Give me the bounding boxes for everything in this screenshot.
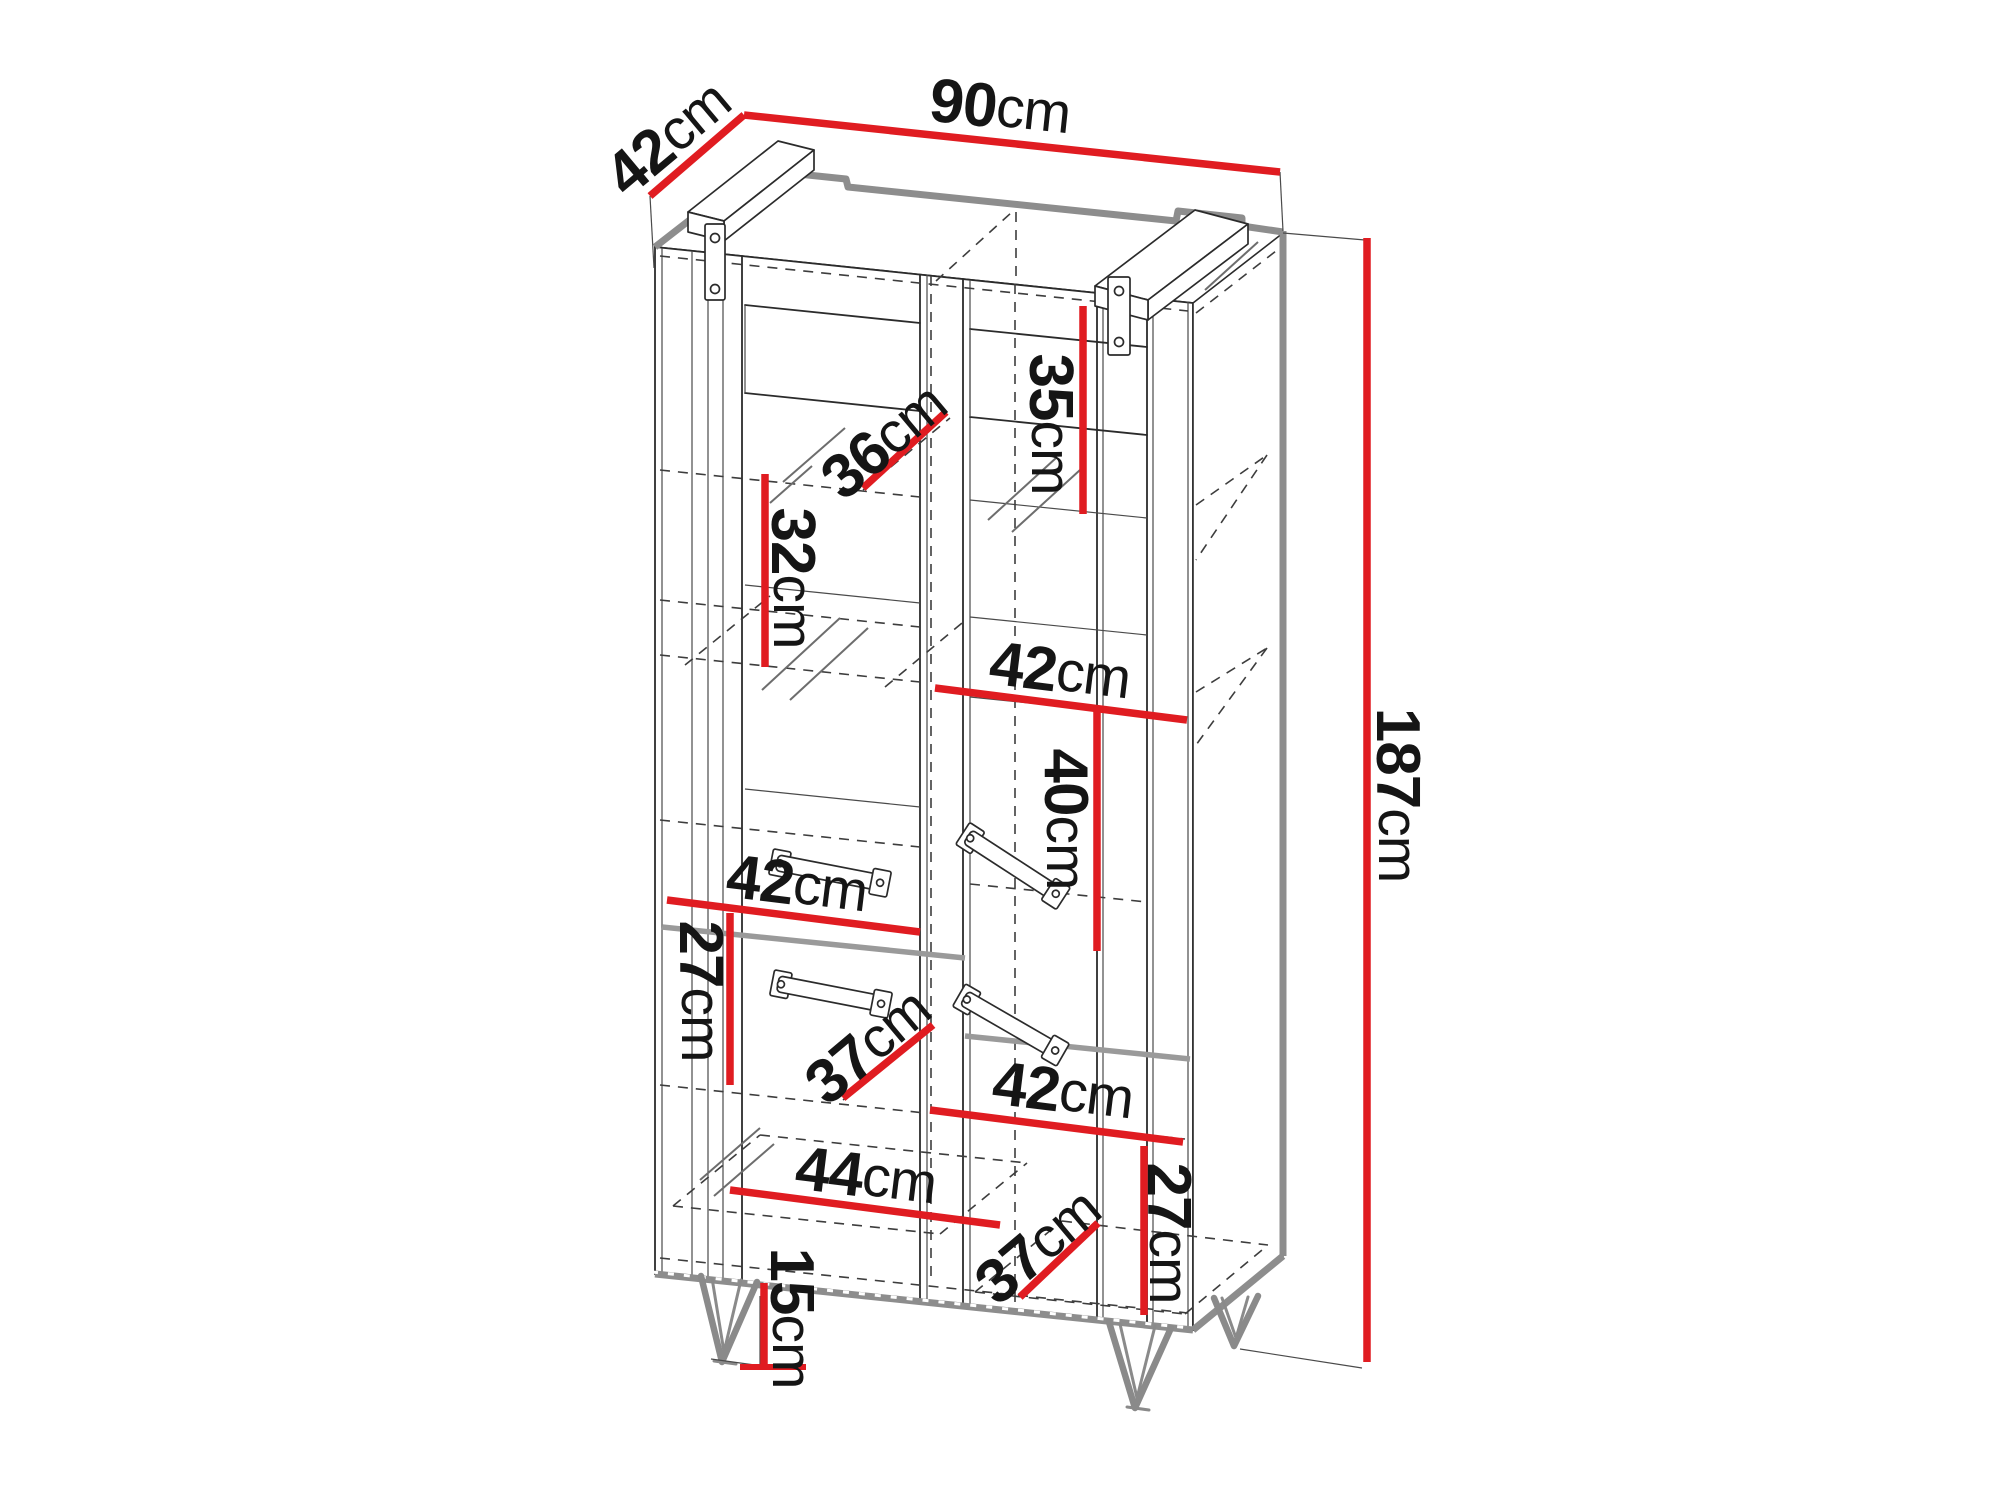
dim-label-top-width: 90cm	[926, 65, 1073, 148]
floor-line	[1240, 1349, 1362, 1368]
dim-label-lower-left-shelf-height: 27cm	[667, 921, 736, 1062]
cabinet-right-side	[1193, 233, 1283, 1330]
screw-hole-icon	[711, 285, 720, 294]
dim-label-overall-height: 187cm	[1364, 708, 1433, 882]
screw-hole-icon	[1115, 287, 1124, 296]
svg-text:40cm: 40cm	[1032, 749, 1101, 890]
svg-text:27cm: 27cm	[1135, 1163, 1204, 1304]
svg-text:35cm: 35cm	[1017, 354, 1086, 495]
dimension-drawing-page: 42cm 90cm 187cm 36cm 35cm 32cm 42cm 40cm…	[0, 0, 2000, 1499]
hairpin-leg-front-left	[701, 1276, 757, 1364]
svg-text:32cm: 32cm	[759, 508, 828, 649]
dim-label-leg-height: 15cm	[758, 1248, 827, 1389]
screw-hole-icon	[711, 234, 720, 243]
svg-text:27cm: 27cm	[667, 921, 736, 1062]
svg-text:187cm: 187cm	[1364, 708, 1433, 882]
dim-label-middle-right-height: 40cm	[1032, 749, 1101, 890]
screw-hole-icon	[1115, 338, 1124, 347]
hairpin-leg-front-right	[1109, 1322, 1171, 1410]
svg-text:90cm: 90cm	[926, 65, 1073, 148]
dim-label-lower-right-shelf-height: 27cm	[1135, 1163, 1204, 1304]
furniture-dimension-diagram: 42cm 90cm 187cm 36cm 35cm 32cm 42cm 40cm…	[0, 0, 2000, 1499]
dim-label-upper-right-shelf-height: 35cm	[1017, 354, 1086, 495]
svg-text:15cm: 15cm	[758, 1248, 827, 1389]
dim-label-upper-left-shelf-height: 32cm	[759, 508, 828, 649]
